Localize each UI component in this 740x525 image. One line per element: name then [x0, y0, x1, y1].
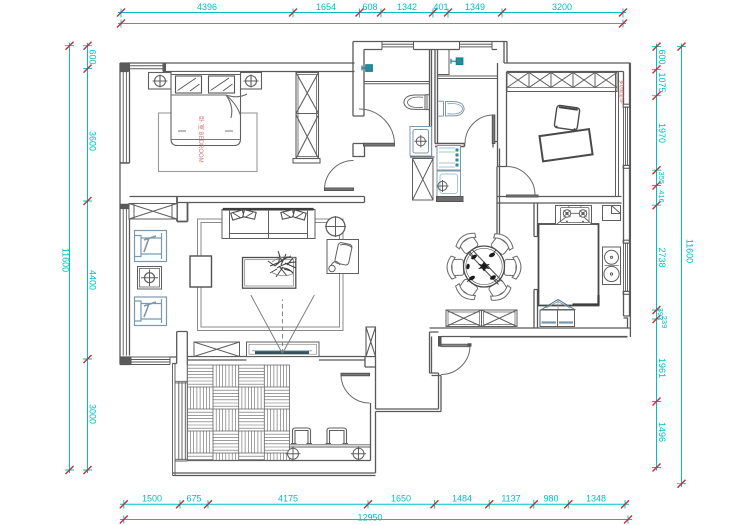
svg-text:401: 401 — [433, 2, 448, 12]
svg-text:1970: 1970 — [657, 123, 667, 143]
svg-text:1961: 1961 — [657, 358, 667, 378]
svg-text:1654: 1654 — [316, 2, 336, 12]
svg-text:卧·室 BEDROOM: 卧·室 BEDROOM — [197, 116, 205, 163]
svg-text:3600: 3600 — [88, 131, 98, 151]
svg-text:4396: 4396 — [197, 2, 217, 12]
svg-text:3000: 3000 — [88, 404, 98, 424]
svg-text:11600: 11600 — [61, 248, 71, 272]
svg-text:1650: 1650 — [391, 494, 411, 504]
svg-text:1342: 1342 — [397, 2, 417, 12]
svg-text:600: 600 — [657, 49, 667, 64]
svg-text:675: 675 — [186, 494, 201, 504]
svg-text:1348: 1348 — [586, 494, 606, 504]
svg-text:608: 608 — [362, 2, 377, 12]
svg-text:980: 980 — [543, 494, 558, 504]
svg-text:2738: 2738 — [657, 247, 667, 267]
svg-text:239: 239 — [660, 316, 669, 329]
svg-text:11600: 11600 — [685, 239, 695, 263]
svg-text:1075: 1075 — [657, 72, 667, 92]
svg-text:416: 416 — [657, 190, 666, 203]
svg-text:12950: 12950 — [357, 513, 382, 523]
svg-text:1137: 1137 — [501, 494, 520, 504]
svg-text:1484: 1484 — [452, 494, 472, 504]
svg-text:1349: 1349 — [465, 2, 485, 12]
svg-text:355: 355 — [657, 172, 666, 185]
svg-text:1496: 1496 — [657, 422, 667, 442]
svg-text:1500: 1500 — [142, 494, 162, 504]
svg-text:4400: 4400 — [88, 270, 98, 290]
svg-text:多功能室SF: 多功能室SF — [618, 80, 625, 104]
svg-text:4175: 4175 — [278, 494, 298, 504]
svg-text:3200: 3200 — [552, 2, 572, 12]
svg-text:600: 600 — [88, 49, 98, 64]
